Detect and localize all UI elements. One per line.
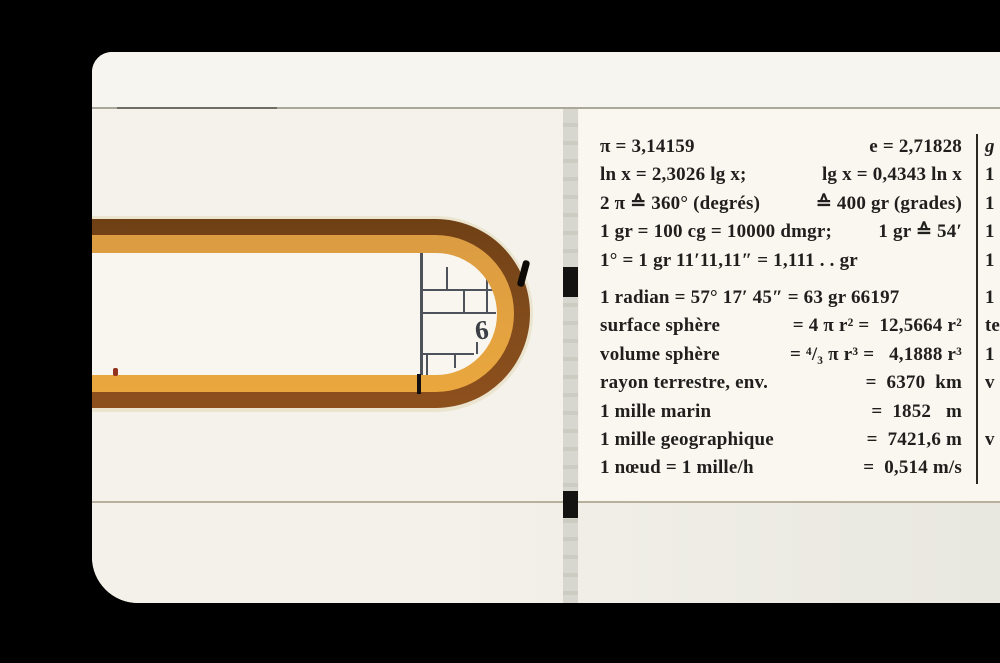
slide-rule-photo: 6 π = 3,14159 e = 2,71828 ln x = 2,3026 … (0, 0, 1000, 663)
margin-char: 1 (985, 341, 995, 369)
margin-char: 1 (985, 247, 995, 275)
scale-tick (486, 289, 488, 313)
constants-line: π = 3,14159 e = 2,71828 (600, 133, 962, 161)
scale-digit: 6 (473, 314, 490, 346)
top-rail (92, 52, 1000, 109)
constants-line: rayon terrestre, env. = 6370 km (600, 369, 962, 397)
constants-line: 2 π ≙ 360° (degrés) ≙ 400 gr (grades) (600, 190, 962, 218)
constants-line: 1 gr = 100 cg = 10000 dmgr; 1 gr ≙ 54′ (600, 218, 962, 246)
line-left: ln x = 2,3026 lg x; (600, 161, 747, 189)
scale-tick (426, 353, 428, 375)
line-left: π = 3,14159 (600, 133, 695, 161)
line-right: = 1852 m (871, 398, 962, 426)
constants-line: 1° = 1 gr 11′11,11″ = 1,111 . . gr (600, 247, 962, 275)
registration-mark (563, 491, 578, 518)
line-right: e = 2,71828 (869, 133, 962, 161)
bottom-rail (92, 501, 1000, 603)
line-left: 1° = 1 gr 11′11,11″ = 1,111 . . gr (600, 247, 858, 275)
line-left: 2 π ≙ 360° (degrés) (600, 190, 760, 218)
line-left: 1 radian = 57° 17′ 45″ = 63 gr 66197 (600, 284, 899, 312)
line-left: 1 gr = 100 cg = 10000 dmgr; (600, 218, 832, 246)
red-speck (113, 368, 118, 376)
margin-char: 1 (985, 161, 995, 189)
constants-panel: π = 3,14159 e = 2,71828 ln x = 2,3026 lg… (579, 109, 1000, 501)
line-left: 1 mille marin (600, 398, 711, 426)
index-mark (417, 374, 421, 394)
divider-strip (563, 109, 578, 603)
scale-line (420, 289, 493, 291)
constants-line: volume sphère = ⁴/₃ π r³ = 4,1888 r³ (600, 341, 962, 369)
constants-line: 1 nœud = 1 mille/h = 0,514 m/s (600, 454, 962, 482)
line-right: = 6370 km (866, 369, 962, 397)
constants-line: surface sphère = 4 π r² = 12,5664 r² (600, 312, 962, 340)
slide-slot: 6 (92, 216, 533, 412)
line-right: lg x = 0,4343 ln x (822, 161, 962, 189)
line-right: = ⁴/₃ π r³ = 4,1888 r³ (790, 341, 962, 369)
margin-char: v (985, 426, 995, 454)
line-left: 1 nœud = 1 mille/h (600, 454, 754, 482)
line-right: = 0,514 m/s (863, 454, 962, 482)
constants-lines: π = 3,14159 e = 2,71828 ln x = 2,3026 lg… (600, 133, 962, 483)
slot-window: 6 (92, 253, 497, 375)
top-seam-line (117, 107, 277, 109)
constants-line: 1 mille geographique = 7421,6 m (600, 426, 962, 454)
registration-mark (563, 267, 578, 297)
margin-char: 1 (985, 190, 995, 218)
scale-tick (446, 267, 448, 290)
line-left: 1 mille geographique (600, 426, 774, 454)
line-right: ≙ 400 gr (grades) (816, 190, 962, 218)
line-right: 1 gr ≙ 54′ (878, 218, 962, 246)
line-right: = 7421,6 m (867, 426, 962, 454)
margin-char: g (985, 133, 995, 161)
scale-line (420, 353, 474, 355)
line-left: rayon terrestre, env. (600, 369, 768, 397)
constants-line: 1 radian = 57° 17′ 45″ = 63 gr 66197 (600, 284, 962, 312)
line-left: surface sphère (600, 312, 720, 340)
ink-mark (517, 260, 531, 288)
line-left: volume sphère (600, 341, 720, 369)
line-right: = 4 π r² = 12,5664 r² (793, 312, 962, 340)
margin-char: te (985, 312, 1000, 340)
margin-rule (976, 134, 978, 484)
wood-orange-band: 6 (92, 235, 514, 392)
scale-tick (454, 353, 456, 368)
wood-dark-band: 6 (92, 219, 530, 408)
margin-char: 1 (985, 218, 995, 246)
constants-line: ln x = 2,3026 lg x; lg x = 0,4343 ln x (600, 161, 962, 189)
scale-tick (463, 289, 465, 313)
constants-line: 1 mille marin = 1852 m (600, 398, 962, 426)
scale-main-line (420, 253, 423, 375)
margin-char: 1 (985, 284, 995, 312)
margin-char: v (985, 369, 995, 397)
